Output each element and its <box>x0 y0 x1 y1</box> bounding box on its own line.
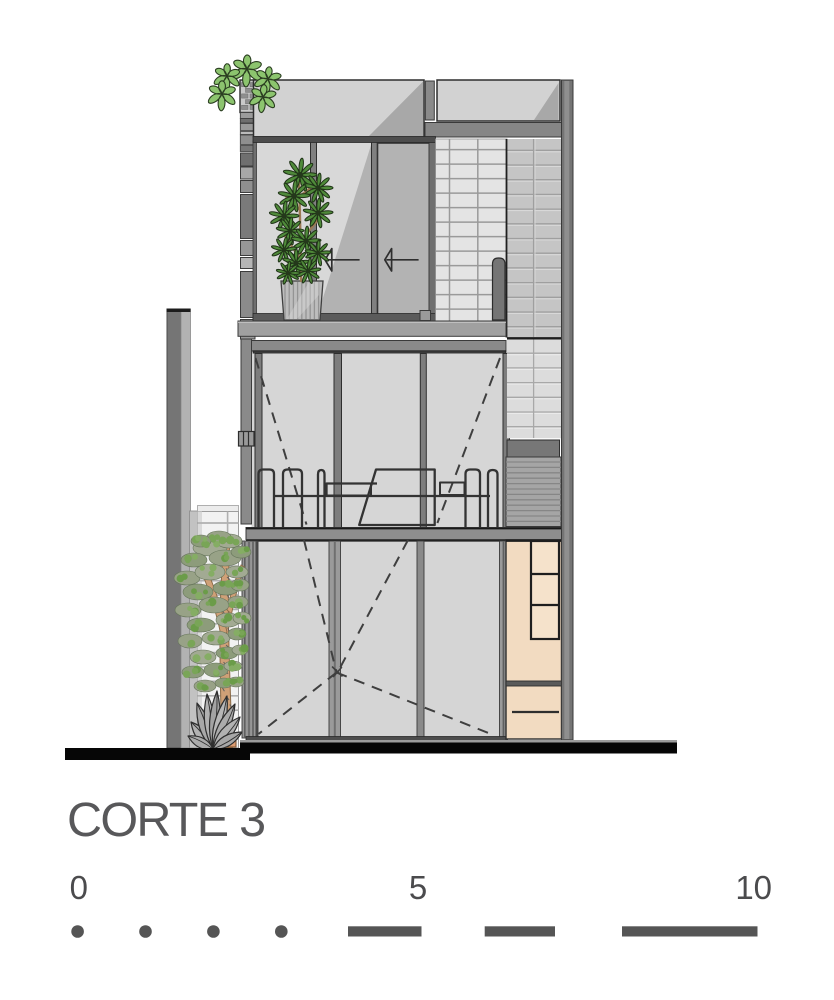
svg-text:10: 10 <box>735 869 772 906</box>
svg-text:CORTE 3: CORTE 3 <box>67 793 264 847</box>
svg-text:5: 5 <box>409 869 427 906</box>
svg-text:0: 0 <box>70 869 88 906</box>
